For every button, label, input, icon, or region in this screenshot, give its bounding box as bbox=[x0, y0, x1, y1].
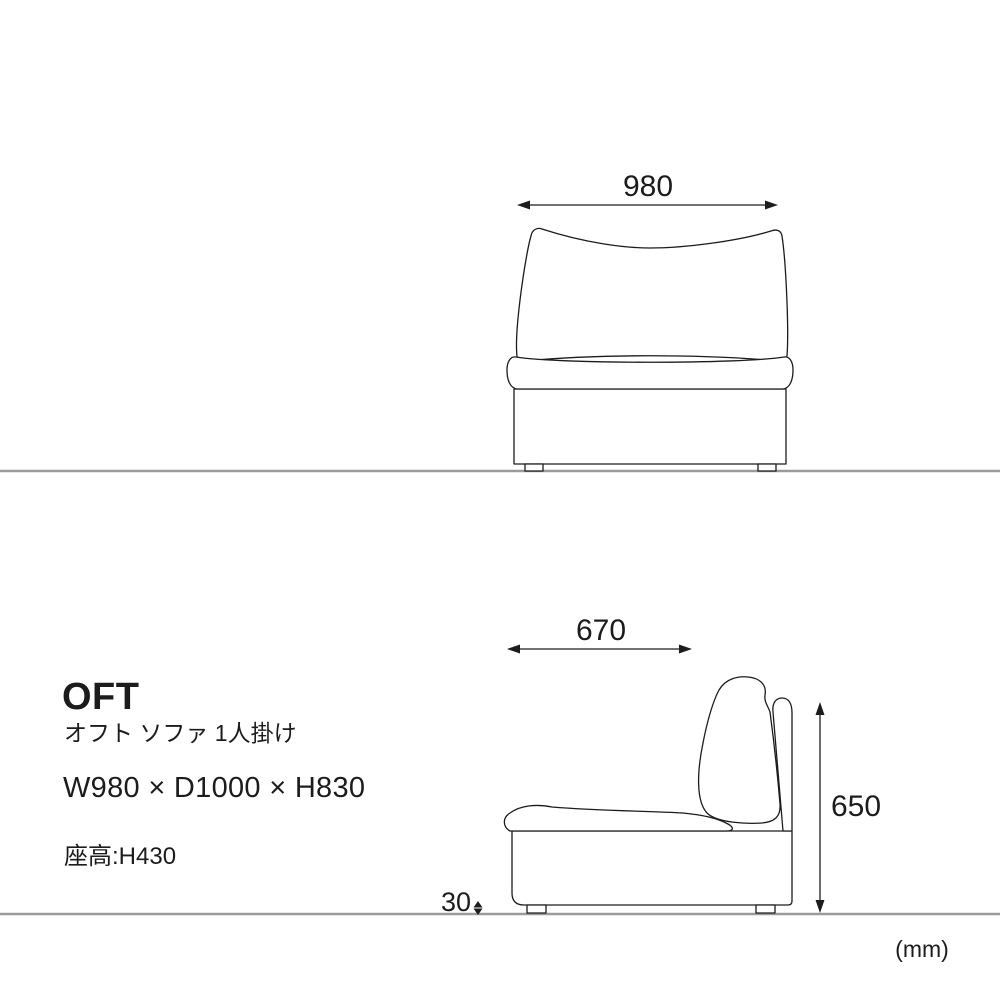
sofa-side-view bbox=[504, 677, 792, 913]
height-dimension-arrow bbox=[816, 702, 825, 913]
front-left-foot bbox=[525, 464, 543, 471]
dimension-diagram-page: 980 670 650 30 (mm) OFT オフト ソファ 1人掛け W98… bbox=[0, 0, 1000, 1000]
product-name: オフト ソファ 1人掛け bbox=[64, 722, 297, 745]
sofa-front-view bbox=[507, 228, 793, 471]
side-base bbox=[512, 831, 792, 905]
arrow-top-head bbox=[816, 702, 825, 715]
front-width-dimension-label: 980 bbox=[623, 172, 673, 202]
seat-height: 座高:H430 bbox=[64, 845, 176, 869]
front-right-foot bbox=[758, 464, 776, 471]
arrow-right-head bbox=[679, 645, 692, 654]
side-height-dimension-label: 650 bbox=[831, 792, 881, 822]
side-left-foot bbox=[527, 905, 546, 913]
front-seat-cushion bbox=[507, 357, 793, 389]
arrow-left-head bbox=[517, 201, 530, 210]
leg-height-dimension-label: 30 bbox=[441, 889, 471, 916]
front-back-cushion bbox=[517, 228, 788, 361]
arrow-bottom-head bbox=[816, 900, 825, 913]
arrow-up-head bbox=[474, 901, 483, 908]
side-seat-cushion bbox=[504, 805, 732, 831]
front-base bbox=[514, 389, 786, 464]
arrow-right-head bbox=[765, 201, 778, 210]
side-depth-dimension-label: 670 bbox=[576, 616, 626, 646]
side-right-foot bbox=[756, 905, 775, 913]
side-front-back-cushion bbox=[699, 677, 781, 824]
product-code: OFT bbox=[62, 678, 139, 716]
arrow-left-head bbox=[507, 645, 520, 654]
unit-label: (mm) bbox=[895, 938, 949, 961]
overall-dimensions: W980 × D1000 × H830 bbox=[63, 774, 365, 803]
